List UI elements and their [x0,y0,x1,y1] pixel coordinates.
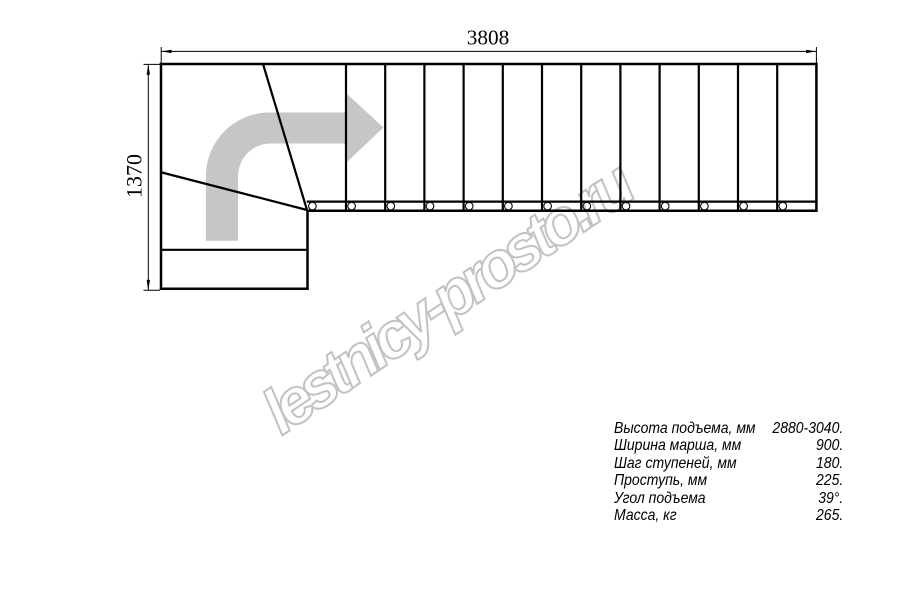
svg-text:1370: 1370 [122,154,147,198]
svg-text:3808: 3808 [467,26,510,50]
svg-text:lestnicy-prosto.ru: lestnicy-prosto.ru [249,146,647,447]
